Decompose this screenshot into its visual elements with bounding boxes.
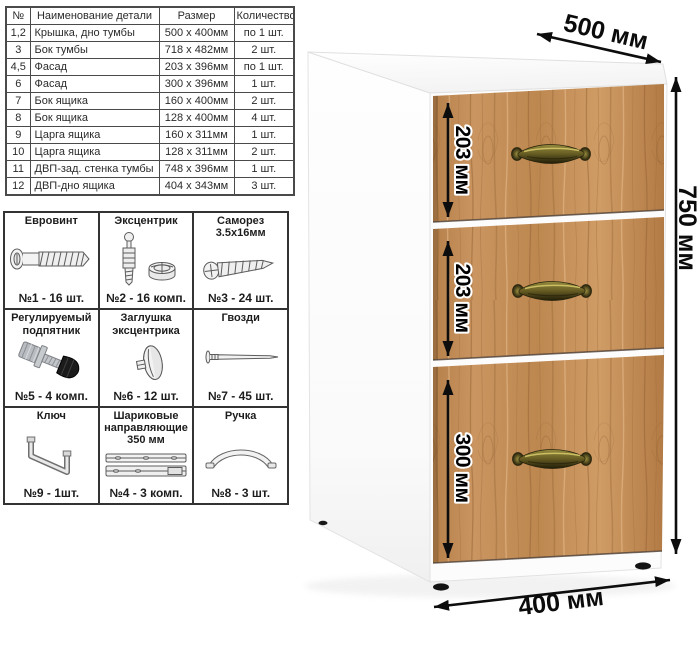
dim-drawer-2-label: 203 мм (451, 264, 474, 333)
cabinet-drawing: 500 мм 750 мм 400 мм 203 мм 203 мм 300 м… (0, 0, 700, 648)
cabinet-foot-front-left (433, 583, 449, 590)
cabinet (308, 52, 667, 591)
dim-height-label: 750 мм (673, 185, 700, 271)
cabinet-foot-front-right (635, 562, 651, 569)
cabinet-side-panel (308, 52, 430, 582)
dim-drawer-1-label: 203 мм (451, 126, 474, 195)
cabinet-foot-back (319, 521, 328, 525)
dim-drawer-3-label: 300 мм (451, 434, 474, 503)
